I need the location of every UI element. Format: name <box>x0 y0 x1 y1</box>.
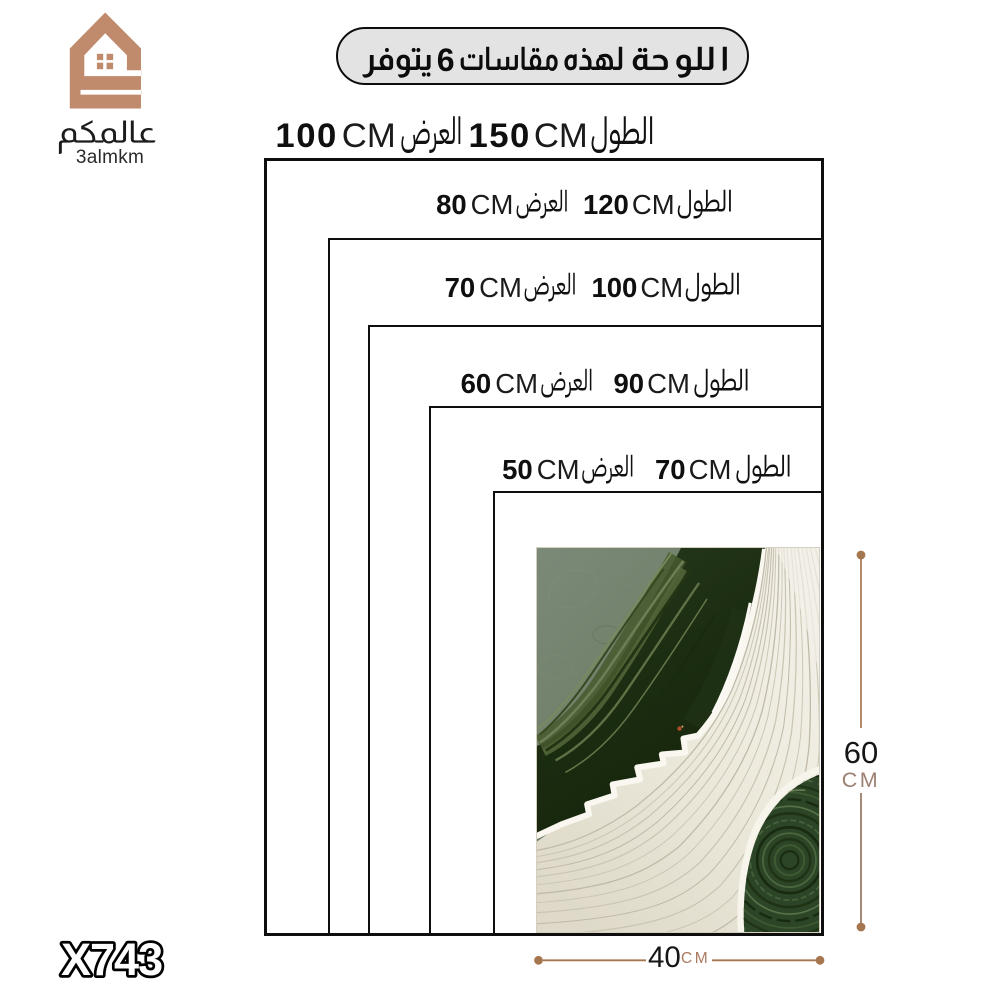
svg-text:X743: X743 <box>61 934 162 985</box>
